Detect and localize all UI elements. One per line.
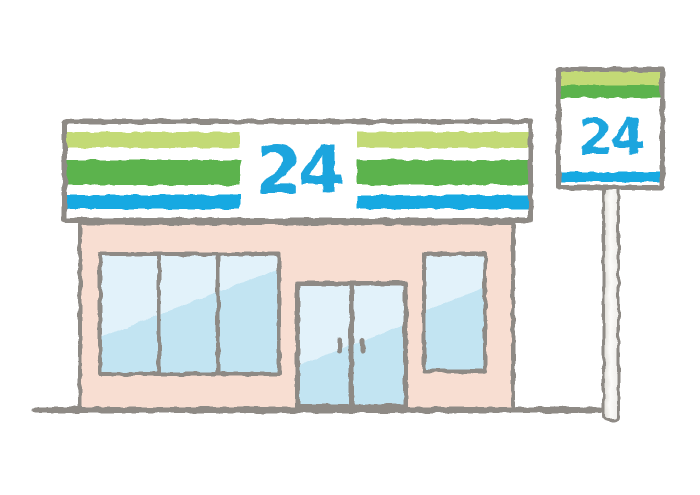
stripe-green (357, 160, 528, 185)
stripe-green (67, 160, 240, 185)
stripe-light-green (67, 132, 240, 148)
stripe-blue (357, 195, 528, 209)
canopy-sign: 24 (62, 119, 533, 223)
storefront-window-left (98, 252, 281, 376)
storefront-window-right (422, 252, 487, 373)
sign-pole (602, 186, 620, 422)
pole-24-label: 24 (561, 72, 660, 185)
canopy-stripes-right (357, 124, 528, 218)
door-handle-left (337, 337, 342, 354)
door-divider (349, 286, 354, 404)
canopy-24-label: 24 (240, 124, 357, 218)
door-handle-right (360, 337, 365, 354)
entrance-double-door (295, 281, 408, 409)
canopy-stripes-left (67, 124, 240, 218)
stripe-blue (67, 195, 240, 209)
convenience-store-illustration: 24 24 (0, 0, 700, 495)
stripe-blue (561, 172, 660, 182)
window-mullion (157, 256, 161, 372)
stripe-light-green (357, 132, 528, 148)
pole-sign: 24 (556, 67, 665, 190)
window-mullion (216, 256, 220, 372)
illustration-canvas: 24 24 (0, 0, 700, 495)
